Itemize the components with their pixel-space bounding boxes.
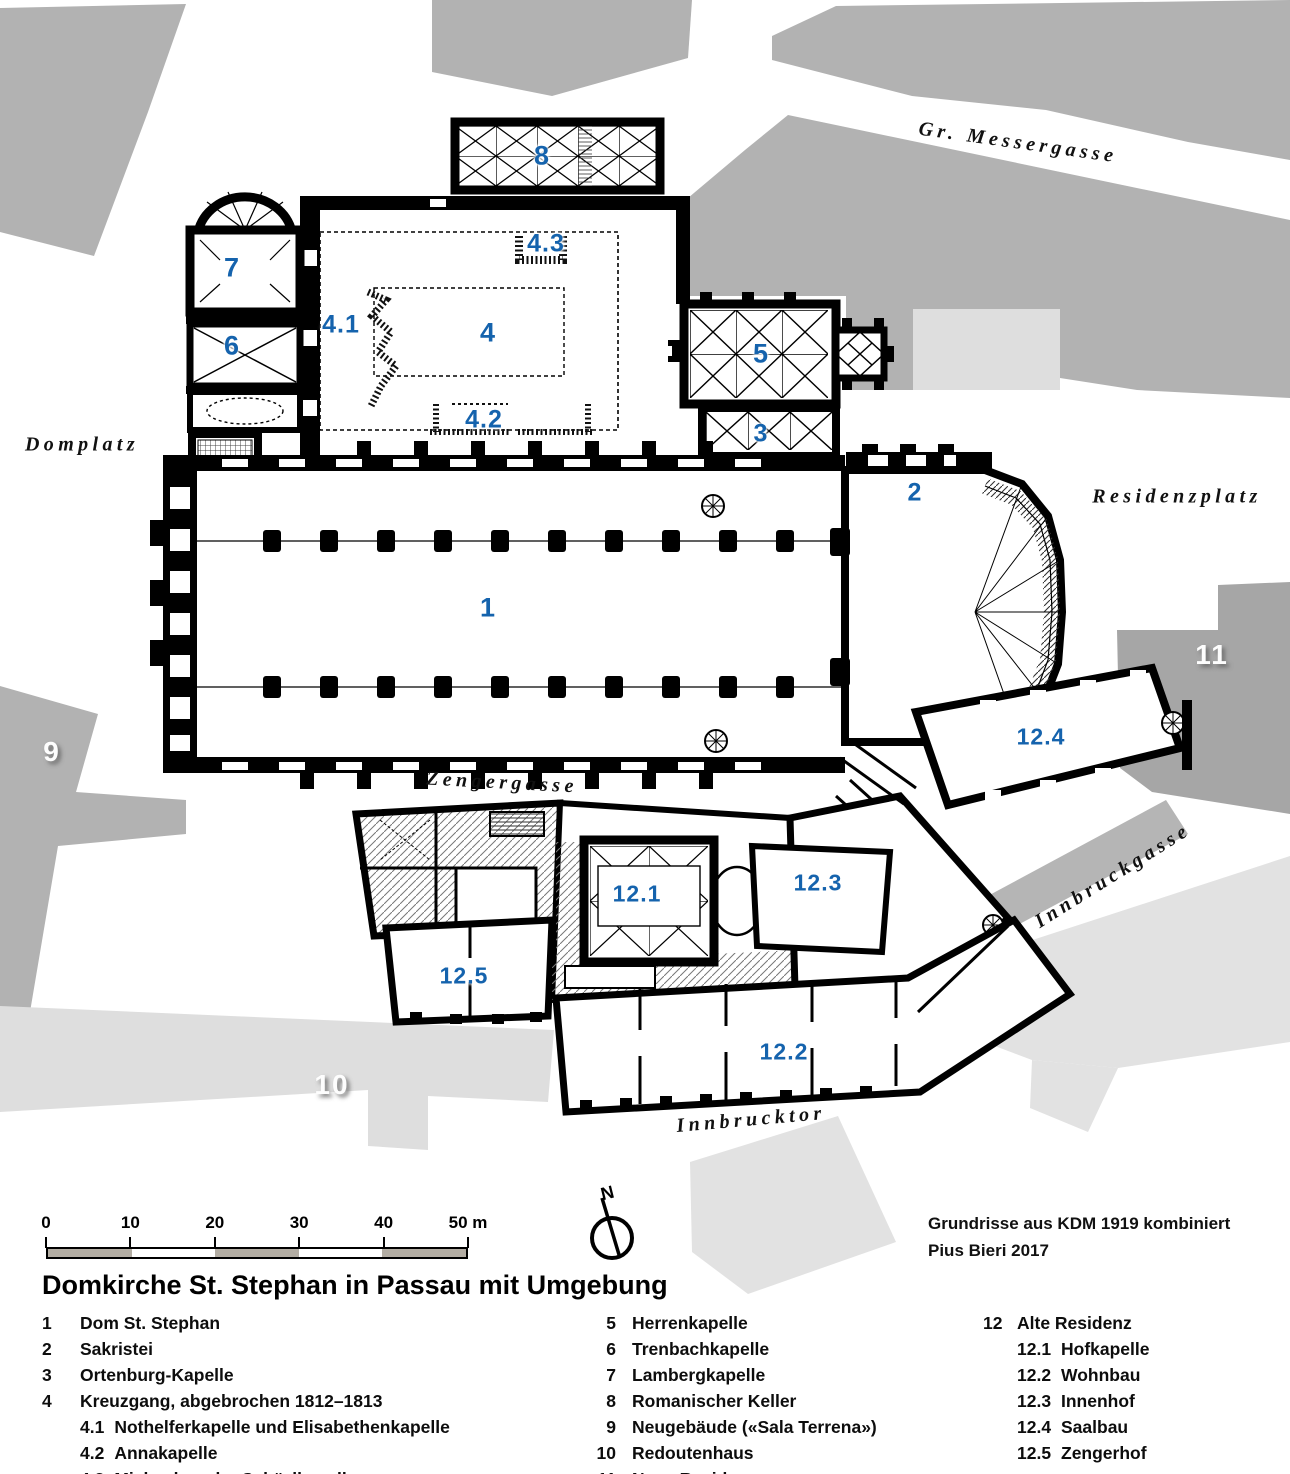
legend-label: Redoutenhaus <box>632 1443 754 1463</box>
scale-tick <box>383 1237 385 1248</box>
legend-number: 4 <box>42 1388 80 1414</box>
legend-number: 4.2 <box>80 1440 104 1466</box>
legend-entry-11: 11Neue Residenz <box>588 1466 968 1474</box>
legend-number: 10 <box>588 1440 616 1466</box>
scale-segment <box>48 1249 132 1257</box>
legend-label: Michaels- oder Schäzlkapelle <box>114 1469 356 1474</box>
legend-number: 12.1 <box>1017 1336 1051 1362</box>
legend-entry-5: 5Herrenkapelle <box>588 1310 968 1336</box>
legend-entry-12.5: 12.5Zengerhof <box>983 1440 1283 1466</box>
legend-label: Herrenkapelle <box>632 1313 748 1333</box>
legend-entry-8: 8Romanischer Keller <box>588 1388 968 1414</box>
floor-plan-map: Gr. MessergasseDomplatzResidenzplatzZeng… <box>0 0 1290 1474</box>
credits: Grundrisse aus KDM 1919 kombiniert Pius … <box>928 1210 1230 1264</box>
legend-label: Annakapelle <box>114 1443 217 1463</box>
scale-tick-label: 40 <box>374 1213 393 1233</box>
legend-number: 11 <box>588 1466 616 1474</box>
legend-entry-4: 4Kreuzgang, abgebrochen 1812–1813 <box>42 1388 562 1414</box>
legend-label: Ortenburg-Kapelle <box>80 1365 234 1385</box>
legend-label: Kreuzgang, abgebrochen 1812–1813 <box>80 1391 382 1411</box>
legend-number: 12.5 <box>1017 1440 1051 1466</box>
legend-number: 12.3 <box>1017 1388 1051 1414</box>
legend-number: 1 <box>42 1310 80 1336</box>
legend-column-2: 5Herrenkapelle6Trenbachkapelle7Lambergka… <box>588 1310 968 1474</box>
legend-entry-12: 12Alte Residenz <box>983 1310 1283 1336</box>
legend-entry-12.4: 12.4Saalbau <box>983 1414 1283 1440</box>
legend-column-3: 12Alte Residenz12.1Hofkapelle12.2Wohnbau… <box>983 1310 1283 1466</box>
building-romanesque-cellar <box>455 122 660 190</box>
legend-label: Lambergkapelle <box>632 1365 765 1385</box>
legend-label: Innenhof <box>1061 1391 1135 1411</box>
scale-tick <box>214 1237 216 1248</box>
legend-label: Hofkapelle <box>1061 1339 1150 1359</box>
scale-tick-label: 10 <box>121 1213 140 1233</box>
scale-tick <box>298 1237 300 1248</box>
credits-line-2: Pius Bieri 2017 <box>928 1237 1230 1264</box>
legend-number: 9 <box>588 1414 616 1440</box>
building-cloister <box>300 196 690 455</box>
legend-label: Romanischer Keller <box>632 1391 796 1411</box>
legend-label: Wohnbau <box>1061 1365 1140 1385</box>
building-west-chapels <box>186 192 304 480</box>
legend-entry-4.1: 4.1Nothelferkapelle und Elisabethenkapel… <box>42 1414 562 1440</box>
legend-label: Neugebäude («Sala Terrena») <box>632 1417 877 1437</box>
legend-entry-1: 1Dom St. Stephan <box>42 1310 562 1336</box>
legend-entry-6: 6Trenbachkapelle <box>588 1336 968 1362</box>
legend-label: Neue Residenz <box>632 1469 756 1474</box>
legend-number: 2 <box>42 1336 80 1362</box>
legend-number: 12 <box>983 1310 1017 1336</box>
legend-number: 6 <box>588 1336 616 1362</box>
scale-tick-label: 30 <box>290 1213 309 1233</box>
scale-tick <box>467 1237 469 1248</box>
legend-label: Trenbachkapelle <box>632 1339 769 1359</box>
legend-entry-7: 7Lambergkapelle <box>588 1362 968 1388</box>
scale-tick <box>129 1237 131 1248</box>
legend-label: Dom St. Stephan <box>80 1313 220 1333</box>
legend-entry-4.2: 4.2Annakapelle <box>42 1440 562 1466</box>
legend-entry-12.1: 12.1Hofkapelle <box>983 1336 1283 1362</box>
legend-number: 8 <box>588 1388 616 1414</box>
map-title: Domkirche St. Stephan in Passau mit Umge… <box>42 1270 668 1301</box>
legend-label: Alte Residenz <box>1017 1313 1132 1333</box>
legend-entry-10: 10Redoutenhaus <box>588 1440 968 1466</box>
legend-entry-12.3: 12.3Innenhof <box>983 1388 1283 1414</box>
scale-segment <box>215 1249 299 1257</box>
scale-tick <box>45 1237 47 1248</box>
legend-label: Nothelferkapelle und Elisabethenkapelle <box>114 1417 450 1437</box>
legend-entry-3: 3Ortenburg-Kapelle <box>42 1362 562 1388</box>
legend-number: 3 <box>42 1362 80 1388</box>
building-ortenburg-chapel <box>702 408 836 456</box>
legend-entry-9: 9Neugebäude («Sala Terrena») <box>588 1414 968 1440</box>
legend-label: Saalbau <box>1061 1417 1128 1437</box>
legend-column-1: 1Dom St. Stephan2Sakristei3Ortenburg-Kap… <box>42 1310 562 1474</box>
legend-number: 7 <box>588 1362 616 1388</box>
legend-number: 12.2 <box>1017 1362 1051 1388</box>
legend-entry-4.3: 4.3Michaels- oder Schäzlkapelle <box>42 1466 562 1474</box>
scale-tick-label: 50 m <box>449 1213 488 1233</box>
legend-number: 12.4 <box>1017 1414 1051 1440</box>
scale-bar <box>46 1247 468 1259</box>
credits-line-1: Grundrisse aus KDM 1919 kombiniert <box>928 1210 1230 1237</box>
scale-tick-label: 20 <box>205 1213 224 1233</box>
scale-tick-label: 0 <box>41 1213 50 1233</box>
scale-segment <box>382 1249 466 1257</box>
building-cathedral-nave <box>150 441 1062 852</box>
legend-number: 4.3 <box>80 1466 104 1474</box>
legend-number: 5 <box>588 1310 616 1336</box>
legend-entry-2: 2Sakristei <box>42 1336 562 1362</box>
scale-segment <box>132 1249 216 1257</box>
scale-segment <box>299 1249 383 1257</box>
legend-label: Zengerhof <box>1061 1443 1147 1463</box>
legend-number: 4.1 <box>80 1414 104 1440</box>
legend-entry-12.2: 12.2Wohnbau <box>983 1362 1283 1388</box>
legend-label: Sakristei <box>80 1339 153 1359</box>
